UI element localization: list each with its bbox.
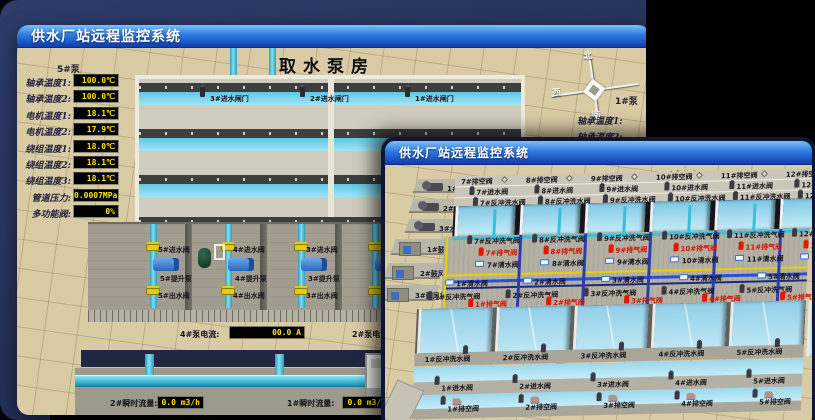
inlet-valve-label: 9#进水阀 <box>606 186 638 194</box>
drain-valve-icon[interactable] <box>518 395 523 403</box>
panel-row-value: 100.0℃ <box>73 74 119 87</box>
gate-valve-icon[interactable] <box>300 87 305 97</box>
filter-grid: 7#排空阀7#进水阀7#反冲洗水阀7#反冲洗气阀7#排气阀7#清水阀8#排空阀8… <box>385 165 812 420</box>
exhaust-valve-label: 9#排气阀 <box>615 247 647 255</box>
exhaust-valve-label: 1#排气阀 <box>475 301 507 309</box>
clean-water-valve-icon[interactable] <box>800 253 809 259</box>
clean-water-valve-icon[interactable] <box>445 279 454 285</box>
exhaust-valve-icon[interactable] <box>608 245 613 253</box>
exhaust-valve-label: 2#排气阀 <box>553 299 585 307</box>
backwash-air-valve-label: 11#反冲洗气阀 <box>734 232 785 240</box>
panel-row-label: 绕组温度1: <box>21 142 71 155</box>
panel-row-value: 18.1℃ <box>73 172 119 185</box>
clean-water-valve-label: 11#清水阀 <box>747 256 784 264</box>
backwash-air-valve-label: 12#反冲洗气阀 <box>799 230 812 238</box>
window-v-filter[interactable]: 供水厂站远程监控系统 1#V滤池 1#水泵2#水泵3#水泵1#鼓风机2#鼓风机3… <box>381 137 815 420</box>
backwash-air-valve-icon[interactable] <box>505 290 510 298</box>
bay-outlet-valve-label: 3#出水阀 <box>306 293 338 300</box>
panel-row-label: 电机温度1: <box>21 109 71 122</box>
drain-valve-label: 10#排空阀 <box>656 174 693 182</box>
clean-water-valve-label: 1#清水阀 <box>456 281 488 289</box>
intake-pipe <box>230 48 237 76</box>
drain-elbow-icon[interactable] <box>608 395 617 401</box>
inlet-valve-label: 11#进水阀 <box>736 183 773 191</box>
pump5-data-panel: 5#泵 轴承温度1:100.0℃轴承温度2:100.0℃电机温度1:18.1℃电… <box>19 62 121 222</box>
backwash-air-valve-icon[interactable] <box>583 288 588 296</box>
backwash-air-valve-icon[interactable] <box>467 236 472 244</box>
backwash-air-valve-icon[interactable] <box>661 287 666 295</box>
exhaust-valve-icon[interactable] <box>738 242 743 250</box>
backwash-water-valve-icon[interactable] <box>668 193 673 201</box>
inlet-valve-icon[interactable] <box>664 182 669 190</box>
backwash-water-valve-icon[interactable] <box>463 346 468 354</box>
upper-filter-cell[interactable] <box>454 205 515 236</box>
upper-filter-cell[interactable] <box>779 198 812 229</box>
flow2-display: 0.0 m3/h <box>157 396 204 409</box>
upper-filter-cell[interactable] <box>519 203 580 234</box>
backwash-air-valve-label: 4#反冲洗气阀 <box>668 288 714 296</box>
inlet-valve-icon[interactable] <box>434 377 439 385</box>
flow2-label: 2#瞬时流量: <box>110 398 157 409</box>
backwash-water-valve-label: 3#反冲洗水阀 <box>580 352 626 360</box>
pump1-panel-header: 1#泵 <box>615 94 638 107</box>
inlet-valve-label: 3#进水阀 <box>597 381 629 389</box>
inlet-valve-icon[interactable] <box>512 375 517 383</box>
gate-valve-label: 1#进水闸门 <box>415 96 454 103</box>
upper-filter-cell[interactable] <box>714 199 775 230</box>
backwash-water-valve-label: 7#反冲洗水阀 <box>480 200 526 208</box>
inlet-valve-icon[interactable] <box>729 181 734 189</box>
lower-filter-cell[interactable] <box>806 299 812 357</box>
exhaust-valve-label: 7#排气阀 <box>485 250 517 258</box>
exhaust-valve-icon[interactable] <box>543 246 548 254</box>
panel-row-value: 18.1℃ <box>73 156 119 169</box>
inlet-valve-icon[interactable] <box>368 244 382 251</box>
drain-valve-label: 7#排空阀 <box>461 178 493 186</box>
inlet-valve-label: 5#进水阀 <box>753 378 785 386</box>
clean-water-valve-label: 4#清水阀 <box>690 275 722 283</box>
clean-water-valve-icon[interactable] <box>605 258 614 264</box>
compass-west-label: 西 <box>551 85 562 99</box>
clean-water-valve-label: 5#清水阀 <box>768 274 800 282</box>
exhaust-valve-label: 12#排气阀 <box>810 242 812 250</box>
backwash-air-valve-label: 5#反冲洗气阀 <box>746 287 792 295</box>
v-filter-scene: 1#V滤池 1#水泵2#水泵3#水泵1#鼓风机2#鼓风机3#鼓风机 <box>385 165 812 420</box>
panel-row-value: 0.0007MPa <box>73 189 119 202</box>
scene-heading-intake: 取水泵房 <box>279 52 375 77</box>
backwash-air-valve-label: 9#反冲洗气阀 <box>604 235 650 243</box>
backwash-air-valve-label: 10#反冲洗气阀 <box>669 233 720 241</box>
panel-row-value: 100.0℃ <box>73 90 119 103</box>
inlet-valve-label: 1#进水阀 <box>441 385 473 393</box>
drain-valve-icon[interactable] <box>752 390 757 398</box>
panel-row-value: 18.1℃ <box>73 107 119 120</box>
inlet-valve-label: 8#进水阀 <box>541 188 573 196</box>
gate-valve-icon[interactable] <box>200 87 205 97</box>
desktop: 供水厂站远程监控系统 取水泵房 3#进水闸门2#进水闸门1#进水闸门 5#泵 <box>0 0 815 420</box>
exhaust-valve-label: 10#排气阀 <box>680 245 717 253</box>
lift-pump-icon[interactable] <box>153 258 179 271</box>
bay-pump-label: 3#提升泵 <box>308 276 340 283</box>
drain-valve-icon[interactable] <box>674 391 679 399</box>
upper-filter-cell[interactable] <box>649 201 710 232</box>
drain-valve-label: 3#排空阀 <box>603 402 635 410</box>
clean-water-valve-icon[interactable] <box>679 274 688 280</box>
clean-water-valve-label: 7#清水阀 <box>487 262 519 270</box>
bay-outlet-valve-label: 4#出水阀 <box>233 293 265 300</box>
exhaust-valve-icon[interactable] <box>803 240 808 248</box>
front-window-titlebar[interactable]: 供水厂站远程监控系统 <box>385 141 812 165</box>
compass-north-label: 北 <box>582 48 593 62</box>
pump4-current-display: 00.0 A <box>229 326 305 339</box>
bay-inlet-valve-label: 3#进水阀 <box>306 247 338 254</box>
exhaust-valve-icon[interactable] <box>468 299 473 307</box>
inlet-valve-icon[interactable] <box>590 373 595 381</box>
gate-valve-icon[interactable] <box>405 87 410 97</box>
bay-outlet-valve-label: 5#出水阀 <box>158 293 190 300</box>
backwash-water-valve-icon[interactable] <box>538 196 543 204</box>
exhaust-valve-label: 11#排气阀 <box>745 244 782 252</box>
exhaust-valve-icon[interactable] <box>546 297 551 305</box>
backwash-water-valve-icon[interactable] <box>473 198 478 206</box>
drain-elbow-icon[interactable] <box>452 398 461 404</box>
inlet-valve-label: 7#进水阀 <box>476 189 508 197</box>
inlet-valve-icon[interactable] <box>794 180 799 188</box>
lift-pump-icon[interactable] <box>301 258 327 271</box>
drain-valve-label: 11#排空阀 <box>721 172 758 180</box>
inlet-valve-icon[interactable] <box>668 371 673 379</box>
exhaust-valve-icon[interactable] <box>478 248 483 256</box>
exhaust-valve-label: 5#排气阀 <box>787 294 812 302</box>
exhaust-valve-label: 4#排气阀 <box>709 296 741 304</box>
chemical-tank[interactable] <box>198 248 211 268</box>
backwash-air-valve-icon[interactable] <box>597 233 602 241</box>
drain-elbow-icon[interactable] <box>686 393 695 399</box>
inlet-valve-label: 2#进水阀 <box>519 383 551 391</box>
exhaust-valve-icon[interactable] <box>780 292 785 300</box>
clean-water-valve-label: 9#清水阀 <box>617 259 649 267</box>
backwash-water-valve-label: 11#反冲洗水阀 <box>740 194 791 202</box>
front-window-title: 供水厂站远程监控系统 <box>385 144 529 161</box>
panel-row-label: 管道压力: <box>21 191 71 204</box>
backwash-water-valve-icon[interactable] <box>603 195 608 203</box>
control-cabinet <box>214 244 225 260</box>
panel-row-value: 0% <box>73 205 119 218</box>
clean-water-valve-icon[interactable] <box>523 278 532 284</box>
bay-inlet-valve-label: 4#进水阀 <box>233 247 265 254</box>
bay-pump-label: 5#提升泵 <box>160 276 192 283</box>
drain-elbow-icon[interactable] <box>764 391 773 397</box>
drain-valve-icon[interactable] <box>596 393 601 401</box>
drain-valve-label: 8#排空阀 <box>526 177 558 185</box>
panel-row-label: 轴承温度1: <box>21 76 71 89</box>
backwash-air-valve-label: 2#反冲洗气阀 <box>512 292 558 300</box>
drain-valve-label: 5#排空阀 <box>759 399 791 407</box>
inlet-valve-icon[interactable] <box>534 185 539 193</box>
backwash-water-valve-icon[interactable] <box>619 343 624 351</box>
back-window-titlebar[interactable]: 供水厂站远程监控系统 <box>17 25 650 48</box>
inlet-valve-label: 4#进水阀 <box>675 380 707 388</box>
backwash-water-valve-label: 4#反冲洗水阀 <box>658 351 704 359</box>
backwash-air-valve-icon[interactable] <box>792 229 797 237</box>
backwash-water-valve-icon[interactable] <box>775 339 780 347</box>
backwash-air-valve-label: 7#反冲洗气阀 <box>474 238 520 246</box>
backwash-water-valve-label: 9#反冲洗水阀 <box>610 197 656 205</box>
backwash-air-valve-label: 1#反冲洗气阀 <box>434 294 480 302</box>
panel-row-label: 多功能阀: <box>21 207 71 220</box>
inlet-valve-icon[interactable] <box>599 184 604 192</box>
backwash-water-valve-icon[interactable] <box>541 344 546 352</box>
drain-valve-icon[interactable] <box>440 397 445 405</box>
panel-row-label: 轴承温度2: <box>21 92 71 105</box>
backwash-water-valve-label: 12#反冲洗水阀 <box>805 192 812 200</box>
backwash-water-valve-label: 10#反冲洗水阀 <box>675 195 726 203</box>
exhaust-valve-label: 3#排气阀 <box>631 298 663 306</box>
gate-valve-label: 2#进水闸门 <box>310 96 349 103</box>
clean-water-valve-icon[interactable] <box>735 255 744 261</box>
backwash-air-valve-icon[interactable] <box>427 292 432 300</box>
backwash-air-valve-icon[interactable] <box>727 230 732 238</box>
panel-row-label: 绕组温度3: <box>21 174 71 187</box>
inlet-valve-label: 12#进水阀 <box>801 182 812 190</box>
upper-filter-cell[interactable] <box>584 202 645 233</box>
backwash-air-valve-icon[interactable] <box>739 285 744 293</box>
inlet-valve-icon[interactable] <box>469 187 474 195</box>
backwash-water-valve-label: 5#反冲洗水阀 <box>736 349 782 357</box>
clean-water-valve-icon[interactable] <box>670 256 679 262</box>
inlet-valve-icon[interactable] <box>746 370 751 378</box>
lift-pump-icon[interactable] <box>228 258 254 271</box>
backwash-air-valve-icon[interactable] <box>662 232 667 240</box>
backwash-air-valve-label: 3#反冲洗气阀 <box>590 290 636 298</box>
backwash-water-valve-label: 2#反冲洗水阀 <box>502 354 548 362</box>
clean-water-valve-icon[interactable] <box>475 261 484 267</box>
exhaust-valve-icon[interactable] <box>673 243 678 251</box>
drain-elbow-icon[interactable] <box>530 396 539 402</box>
inlet-valve-label: 10#进水阀 <box>671 185 708 193</box>
panel-row-value: 18.0℃ <box>73 140 119 153</box>
bay-pump-label: 4#提升泵 <box>235 276 267 283</box>
drain-valve-label: 12#排空阀 <box>786 171 812 179</box>
exhaust-valve-icon[interactable] <box>624 295 629 303</box>
backwash-water-valve-icon[interactable] <box>697 341 702 349</box>
backwash-water-valve-label: 8#反冲洗水阀 <box>545 198 591 206</box>
bay-inlet-valve-label: 5#进水阀 <box>158 247 190 254</box>
clean-water-valve-label: 3#清水阀 <box>612 277 644 285</box>
drain-valve-label: 1#排空阀 <box>447 406 479 414</box>
pump1-panel-row: 轴承温度1: <box>577 114 627 127</box>
clean-water-valve-icon[interactable] <box>540 259 549 265</box>
drain-valve-label: 4#排空阀 <box>681 401 713 409</box>
desktop-black-region-top-right <box>646 0 815 150</box>
backwash-air-valve-icon[interactable] <box>532 234 537 242</box>
clean-water-valve-label: 10#清水阀 <box>682 257 719 265</box>
clean-water-valve-label: 2#清水阀 <box>534 279 566 287</box>
backwash-water-valve-icon[interactable] <box>733 192 738 200</box>
outlet-valve-icon[interactable] <box>368 288 382 295</box>
intake-pipe <box>269 48 276 76</box>
clean-water-valve-icon[interactable] <box>601 276 610 282</box>
flow1-label: 1#瞬时流量: <box>287 398 334 409</box>
panel-row-label: 电机温度2: <box>21 125 71 138</box>
drain-valve-label: 2#排空阀 <box>525 404 557 412</box>
exhaust-valve-label: 8#排气阀 <box>550 248 582 256</box>
backwash-water-valve-label: 1#反冲洗水阀 <box>424 356 470 364</box>
backwash-water-valve-icon[interactable] <box>798 190 803 198</box>
drain-valve-label: 9#排空阀 <box>591 176 623 184</box>
back-window-title: 供水厂站远程监控系统 <box>17 26 181 46</box>
backwash-air-valve-label: 8#反冲洗气阀 <box>539 236 585 244</box>
panel-row-label: 绕组温度2: <box>21 158 71 171</box>
clean-water-valve-icon[interactable] <box>757 272 766 278</box>
exhaust-valve-icon[interactable] <box>702 294 707 302</box>
clean-water-valve-label: 8#清水阀 <box>552 260 584 268</box>
panel-row-value: 17.9℃ <box>73 123 119 136</box>
gate-valve-label: 3#进水闸门 <box>210 96 249 103</box>
pump4-current-label: 4#泵电流: <box>180 329 219 340</box>
